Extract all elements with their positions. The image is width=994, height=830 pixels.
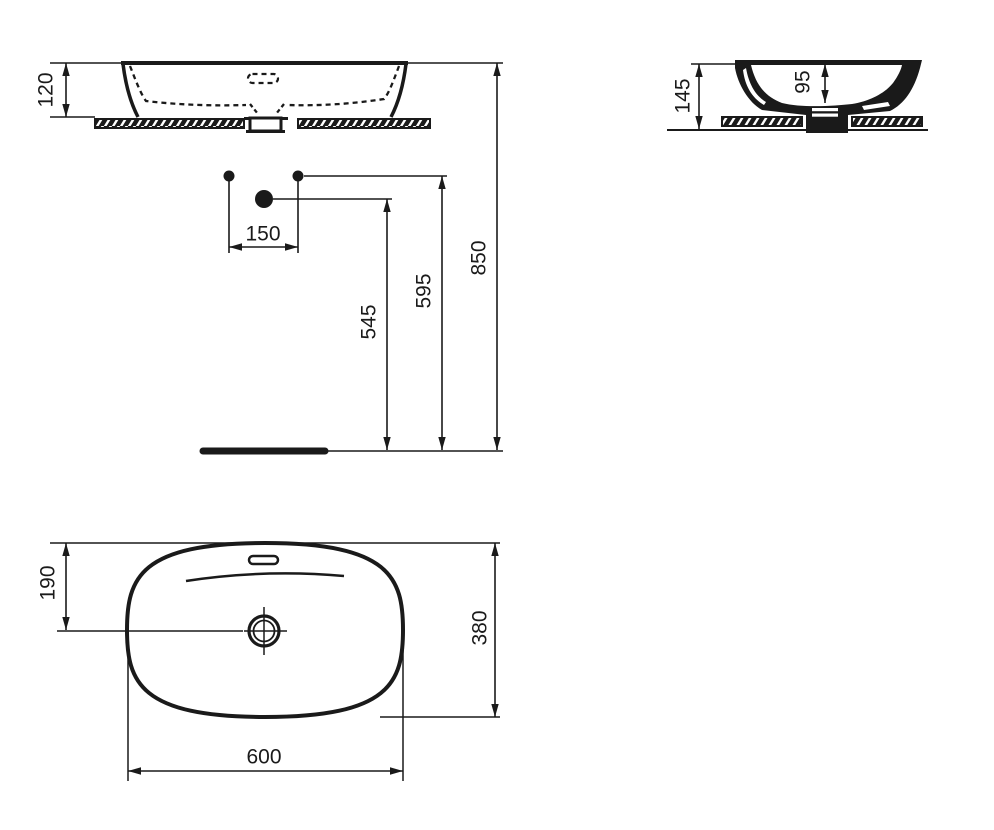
inner-rim-line: [186, 573, 344, 581]
countertop-hatch-right: [852, 117, 922, 126]
washbasin-dimension-drawing: 120 150 545 595 850 145 95: [0, 0, 994, 830]
side-view: 145 95: [667, 60, 928, 133]
inner-bowl-hidden-line: [288, 66, 399, 105]
basin-right-wall: [391, 64, 406, 117]
dim-label-total-height: 850: [468, 240, 491, 275]
dim-label-rim-outlet-height: 595: [413, 273, 436, 308]
front-view: 120 150 545 595 850: [35, 63, 504, 451]
dim-label-tap-hole-spacing: 150: [245, 223, 280, 246]
dim-label-overall-depth: 145: [672, 78, 695, 113]
tap-hole-right-dot: [293, 171, 304, 182]
dim-label-trap-height: 545: [358, 304, 381, 339]
dim-label-basin-height: 120: [35, 72, 58, 107]
drain-slot: [812, 108, 838, 111]
countertop-hatch-right: [298, 119, 430, 128]
dim-label-drain-offset: 190: [37, 565, 60, 600]
countertop-hatch-left: [95, 119, 244, 128]
countertop-hatch-left: [722, 117, 802, 126]
basin-plan-outline: [127, 543, 403, 717]
drain-body: [250, 118, 281, 131]
drain-funnel-hidden-line: [250, 104, 284, 114]
basin-left-wall: [123, 64, 138, 117]
overflow-hole: [249, 556, 278, 564]
plan-view: 190 380 600: [37, 543, 501, 781]
technical-drawing-page: 120 150 545 595 850 145 95: [0, 0, 994, 830]
dim-label-width: 600: [246, 746, 281, 769]
tap-hole-left-dot: [224, 171, 235, 182]
dim-label-bowl-depth: 95: [792, 70, 815, 93]
inner-bowl-hidden-line: [130, 66, 246, 105]
tap-hole-center-dot: [255, 190, 273, 208]
overflow-hole-hidden: [248, 74, 278, 83]
drain-slot: [812, 114, 838, 117]
dim-label-depth: 380: [469, 610, 492, 645]
